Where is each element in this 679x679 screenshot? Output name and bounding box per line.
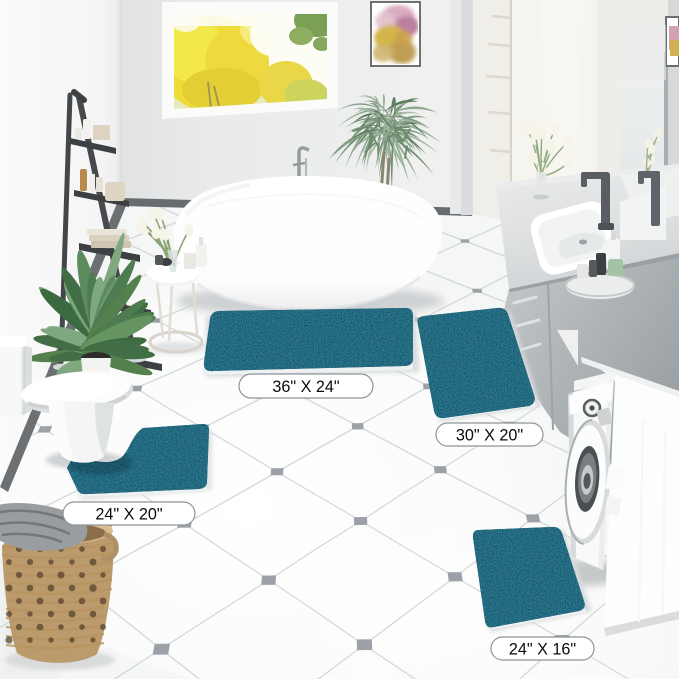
svg-text:24" X 20": 24" X 20" <box>95 505 163 523</box>
svg-text:24" X 16": 24" X 16" <box>509 640 577 658</box>
svg-text:30" X 20": 30" X 20" <box>456 426 524 444</box>
svg-text:36" X 24": 36" X 24" <box>272 378 340 396</box>
